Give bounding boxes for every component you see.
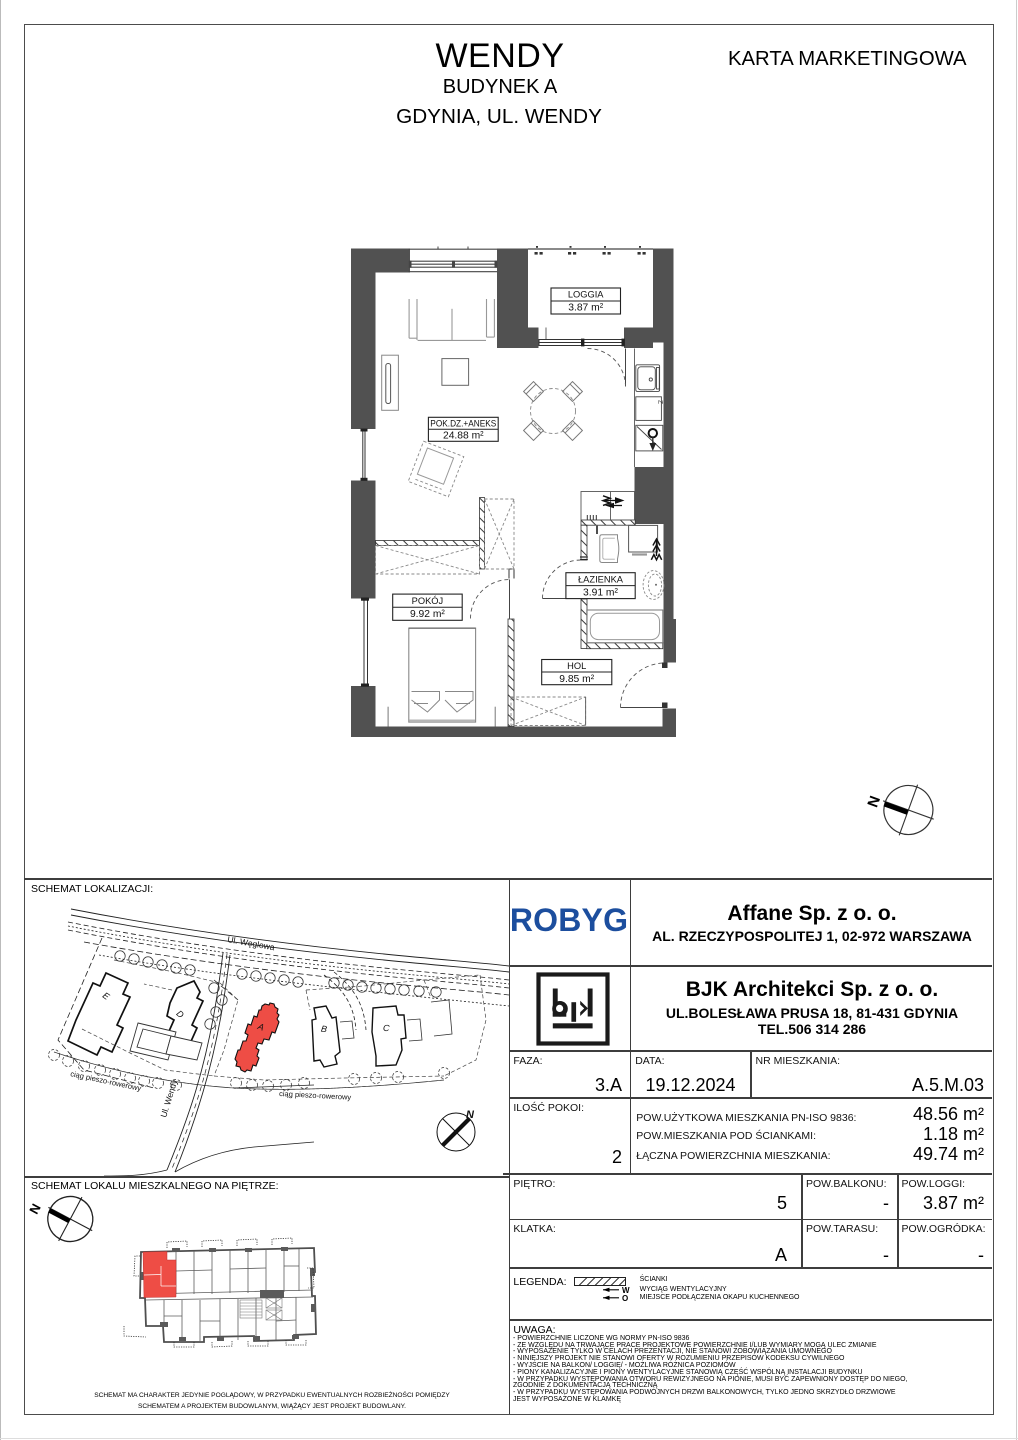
svg-text:ciąg pieszo-rowerowy: ciąg pieszo-rowerowy: [70, 1069, 143, 1093]
svg-text:POK.DZ.+ANEKS: POK.DZ.+ANEKS: [430, 418, 496, 428]
svg-text:Ul. Wendy: Ul. Wendy: [158, 1078, 179, 1119]
svg-text:POKÓJ: POKÓJ: [412, 596, 444, 606]
svg-text:LOGGIA: LOGGIA: [568, 290, 604, 300]
svg-text:3.87 m²: 3.87 m²: [568, 303, 603, 314]
svg-text:9.85 m²: 9.85 m²: [559, 674, 594, 685]
svg-text:HOL: HOL: [567, 661, 586, 671]
svg-text:3.91 m²: 3.91 m²: [583, 588, 618, 599]
svg-text:N: N: [466, 1109, 475, 1121]
svg-text:9.92 m²: 9.92 m²: [410, 609, 445, 620]
svg-text:O: O: [622, 1294, 628, 1303]
svg-text:ŁAZIENKA: ŁAZIENKA: [578, 575, 624, 585]
svg-text:24.88 m²: 24.88 m²: [443, 431, 484, 442]
svg-text:ciąg pieszo-rowerowy: ciąg pieszo-rowerowy: [279, 1089, 352, 1102]
svg-text:N: N: [26, 1201, 44, 1216]
svg-text:Z: Z: [657, 400, 664, 404]
svg-text:N: N: [864, 794, 884, 810]
